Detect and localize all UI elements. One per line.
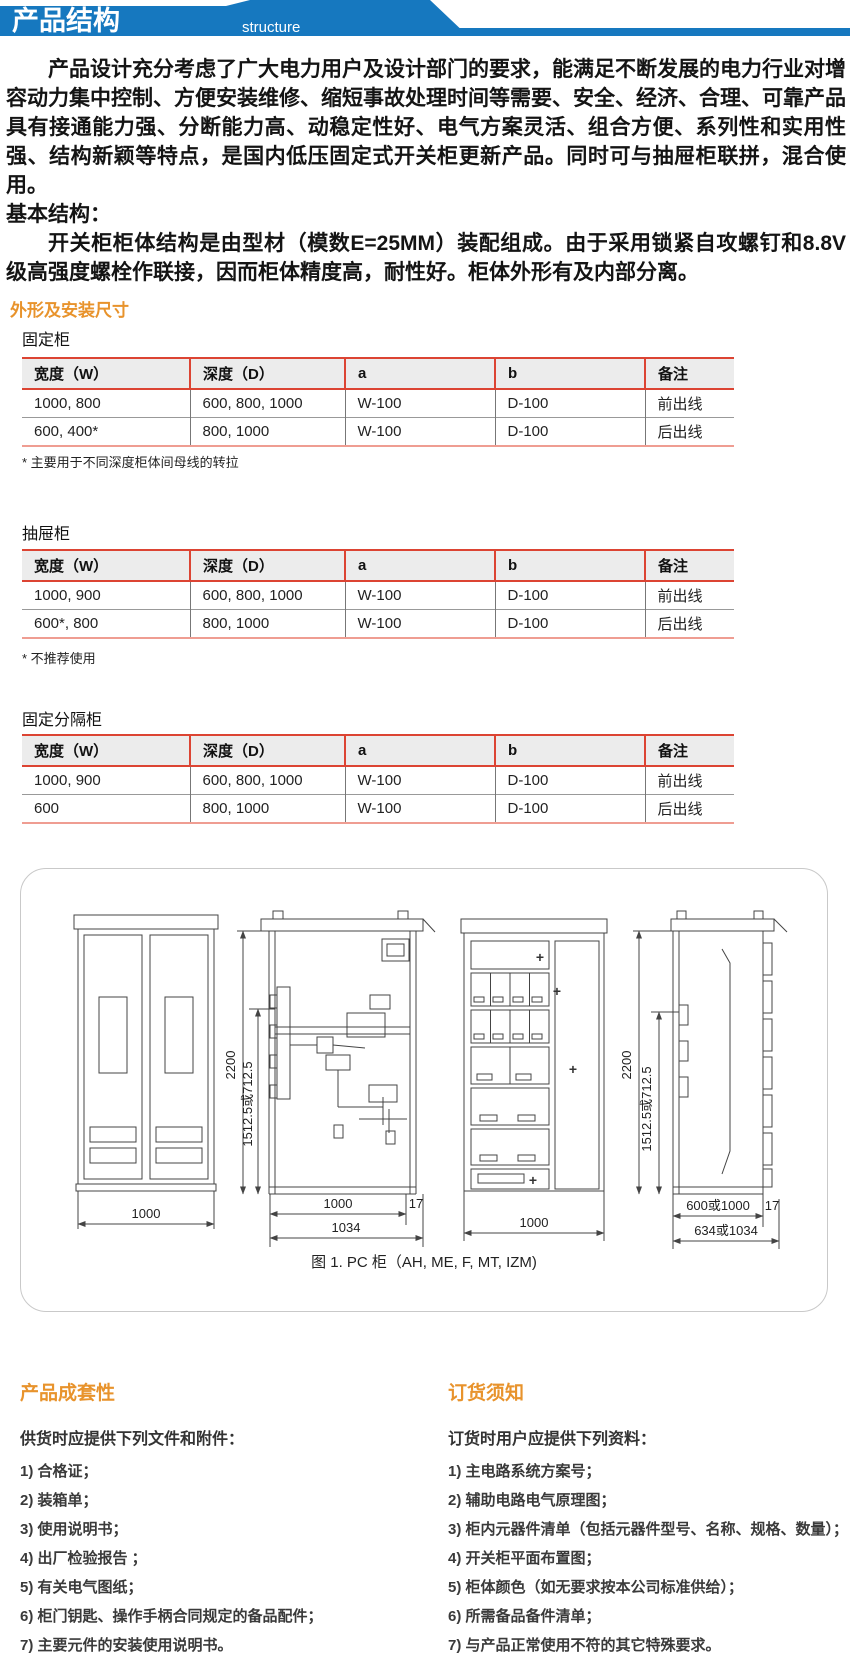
table-cell: 前出线: [645, 581, 734, 610]
dim-label: 17: [409, 1196, 423, 1211]
list-item: 6) 所需备品备件清单；: [448, 1602, 850, 1631]
list-item: 1) 合格证；: [20, 1457, 440, 1486]
col-header: b: [495, 358, 645, 389]
drawer-cabinet-table: 宽度（W） 深度（D） a b 备注 1000, 900 600, 800, 1…: [22, 549, 734, 639]
table-footnote: * 不推荐使用: [22, 648, 96, 667]
dim-label: 2200: [619, 1051, 634, 1080]
dim-label: 1000: [324, 1196, 353, 1211]
table-title-drawer-cabinet: 抽屉柜: [22, 520, 70, 544]
table-cell: W-100: [345, 610, 495, 639]
page-title: 产品结构: [12, 6, 120, 36]
table-cell: 600*, 800: [22, 610, 190, 639]
table-cell: D-100: [495, 389, 645, 418]
table-title-fixed-cabinet: 固定柜: [22, 326, 70, 350]
basic-structure-label: 基本结构：: [6, 200, 846, 229]
table-cell: 800, 1000: [190, 418, 345, 447]
table-cell: 1000, 900: [22, 766, 190, 795]
col-header: 宽度（W）: [22, 358, 190, 389]
partition-cabinet-table: 宽度（W） 深度（D） a b 备注 1000, 900 600, 800, 1…: [22, 734, 734, 824]
table-cell: 1000, 900: [22, 581, 190, 610]
table-cell: D-100: [495, 610, 645, 639]
table-cell: 800, 1000: [190, 610, 345, 639]
table-cell: W-100: [345, 795, 495, 824]
col-header: b: [495, 550, 645, 581]
figure-caption: 图 1. PC 柜（AH, ME, F, MT, IZM): [21, 1251, 827, 1272]
figure-panel: + + + + 1000 2200 1512.5或712.5 1000 1034…: [20, 868, 828, 1312]
section-heading-dimensions: 外形及安装尺寸: [10, 296, 129, 321]
dim-label: 634或1034: [694, 1223, 758, 1238]
col-header: 备注: [645, 550, 734, 581]
list-item: 4) 出厂检验报告 ；: [20, 1544, 440, 1573]
ordering-section: 订货须知 订货时用户应提供下列资料： 1) 主电路系统方案号； 2) 辅助电路电…: [448, 1378, 850, 1654]
svg-text:+: +: [553, 983, 561, 999]
list-item: 3) 柜内元器件清单（包括元器件型号、名称、规格、数量）；: [448, 1515, 850, 1544]
table-cell: D-100: [495, 766, 645, 795]
list-item: 7) 与产品正常使用不符的其它特殊要求。: [448, 1631, 850, 1654]
table-cell: 1000, 800: [22, 389, 190, 418]
table-cell: 800, 1000: [190, 795, 345, 824]
table-row: 600 800, 1000 W-100 D-100 后出线: [22, 795, 734, 824]
table-header-row: 宽度（W） 深度（D） a b 备注: [22, 550, 734, 581]
intro-text: 产品设计充分考虑了广大电力用户及设计部门的要求，能满足不断发展的电力行业对增容动…: [6, 55, 846, 287]
list-item: 5) 柜体颜色（如无要求按本公司标准供给）；: [448, 1573, 850, 1602]
table-title-partition-cabinet: 固定分隔柜: [22, 706, 102, 730]
svg-text:+: +: [569, 1061, 577, 1077]
svg-text:+: +: [529, 1172, 537, 1188]
col-header: b: [495, 735, 645, 766]
svg-text:+: +: [536, 949, 544, 965]
table-cell: 600, 400*: [22, 418, 190, 447]
dim-label: 17: [765, 1198, 779, 1213]
list-item: 1) 主电路系统方案号；: [448, 1457, 850, 1486]
banner-rule: [458, 28, 850, 36]
table-header-row: 宽度（W） 深度（D） a b 备注: [22, 735, 734, 766]
col-header: 备注: [645, 358, 734, 389]
completeness-intro: 供货时应提供下列文件和附件：: [20, 1425, 440, 1449]
table-row: 1000, 900 600, 800, 1000 W-100 D-100 前出线: [22, 766, 734, 795]
cabinet-front-view: [74, 915, 218, 1229]
table-cell: 后出线: [645, 795, 734, 824]
dim-label: 1512.5或712.5: [240, 1061, 255, 1146]
table-cell: 后出线: [645, 418, 734, 447]
col-header: 备注: [645, 735, 734, 766]
table-header-row: 宽度（W） 深度（D） a b 备注: [22, 358, 734, 389]
dim-label: 1034: [332, 1220, 361, 1235]
table-cell: 后出线: [645, 610, 734, 639]
col-header: a: [345, 735, 495, 766]
table-cell: W-100: [345, 389, 495, 418]
table-cell: W-100: [345, 766, 495, 795]
col-header: 深度（D）: [190, 735, 345, 766]
dim-label: 1000: [520, 1215, 549, 1230]
col-header: 深度（D）: [190, 550, 345, 581]
fixed-cabinet-table: 宽度（W） 深度（D） a b 备注 1000, 800 600, 800, 1…: [22, 357, 734, 447]
cabinet-drawer-front-view: [461, 919, 607, 1241]
plus-marks: + + + +: [529, 949, 577, 1188]
table-cell: 600, 800, 1000: [190, 581, 345, 610]
ordering-list: 1) 主电路系统方案号； 2) 辅助电路电气原理图； 3) 柜内元器件清单（包括…: [448, 1457, 850, 1654]
list-item: 3) 使用说明书；: [20, 1515, 440, 1544]
ordering-intro: 订货时用户应提供下列资料：: [448, 1425, 850, 1449]
dim-label: 1000: [132, 1206, 161, 1221]
page: 产品结构 structure 产品设计充分考虑了广大电力用户及设计部门的要求，能…: [0, 0, 850, 1654]
dim-label: 1512.5或712.5: [639, 1066, 654, 1151]
page-subtitle: structure: [242, 19, 300, 36]
list-item: 2) 辅助电路电气原理图；: [448, 1486, 850, 1515]
table-row: 1000, 900 600, 800, 1000 W-100 D-100 前出线: [22, 581, 734, 610]
col-header: 宽度（W）: [22, 550, 190, 581]
dimension-labels: 1000 2200 1512.5或712.5 1000 1034 17 1000…: [132, 1051, 780, 1238]
completeness-section: 产品成套性 供货时应提供下列文件和附件： 1) 合格证； 2) 装箱单； 3) …: [20, 1378, 440, 1654]
figure-drawing: + + + + 1000 2200 1512.5或712.5 1000 1034…: [21, 869, 827, 1311]
table-cell: W-100: [345, 581, 495, 610]
list-item: 4) 开关柜平面布置图；: [448, 1544, 850, 1573]
table-cell: 前出线: [645, 389, 734, 418]
completeness-heading: 产品成套性: [20, 1378, 440, 1405]
table-cell: D-100: [495, 418, 645, 447]
dim-label: 2200: [223, 1051, 238, 1080]
table-cell: 600, 800, 1000: [190, 766, 345, 795]
completeness-list: 1) 合格证； 2) 装箱单； 3) 使用说明书； 4) 出厂检验报告 ； 5)…: [20, 1457, 440, 1654]
table-footnote: * 主要用于不同深度柜体间母线的转拉: [22, 452, 239, 471]
table-cell: D-100: [495, 581, 645, 610]
ordering-heading: 订货须知: [448, 1378, 850, 1405]
list-item: 7) 主要元件的安装使用说明书。: [20, 1631, 440, 1654]
dim-label: 600或1000: [686, 1198, 750, 1213]
col-header: 宽度（W）: [22, 735, 190, 766]
table-row: 600, 400* 800, 1000 W-100 D-100 后出线: [22, 418, 734, 447]
intro-paragraph-1: 产品设计充分考虑了广大电力用户及设计部门的要求，能满足不断发展的电力行业对增容动…: [6, 55, 846, 200]
list-item: 6) 柜门钥匙、操作手柄合同规定的备品配件；: [20, 1602, 440, 1631]
table-cell: 600, 800, 1000: [190, 389, 345, 418]
col-header: a: [345, 550, 495, 581]
table-cell: 前出线: [645, 766, 734, 795]
intro-paragraph-2: 开关柜柜体结构是由型材（模数E=25MM）装配组成。由于采用锁紧自攻螺钉和8.8…: [6, 229, 846, 287]
table-cell: W-100: [345, 418, 495, 447]
table-row: 1000, 800 600, 800, 1000 W-100 D-100 前出线: [22, 389, 734, 418]
list-item: 5) 有关电气图纸；: [20, 1573, 440, 1602]
list-item: 2) 装箱单；: [20, 1486, 440, 1515]
table-cell: D-100: [495, 795, 645, 824]
col-header: 深度（D）: [190, 358, 345, 389]
table-cell: 600: [22, 795, 190, 824]
table-row: 600*, 800 800, 1000 W-100 D-100 后出线: [22, 610, 734, 639]
col-header: a: [345, 358, 495, 389]
header-banner: 产品结构 structure: [0, 0, 850, 42]
